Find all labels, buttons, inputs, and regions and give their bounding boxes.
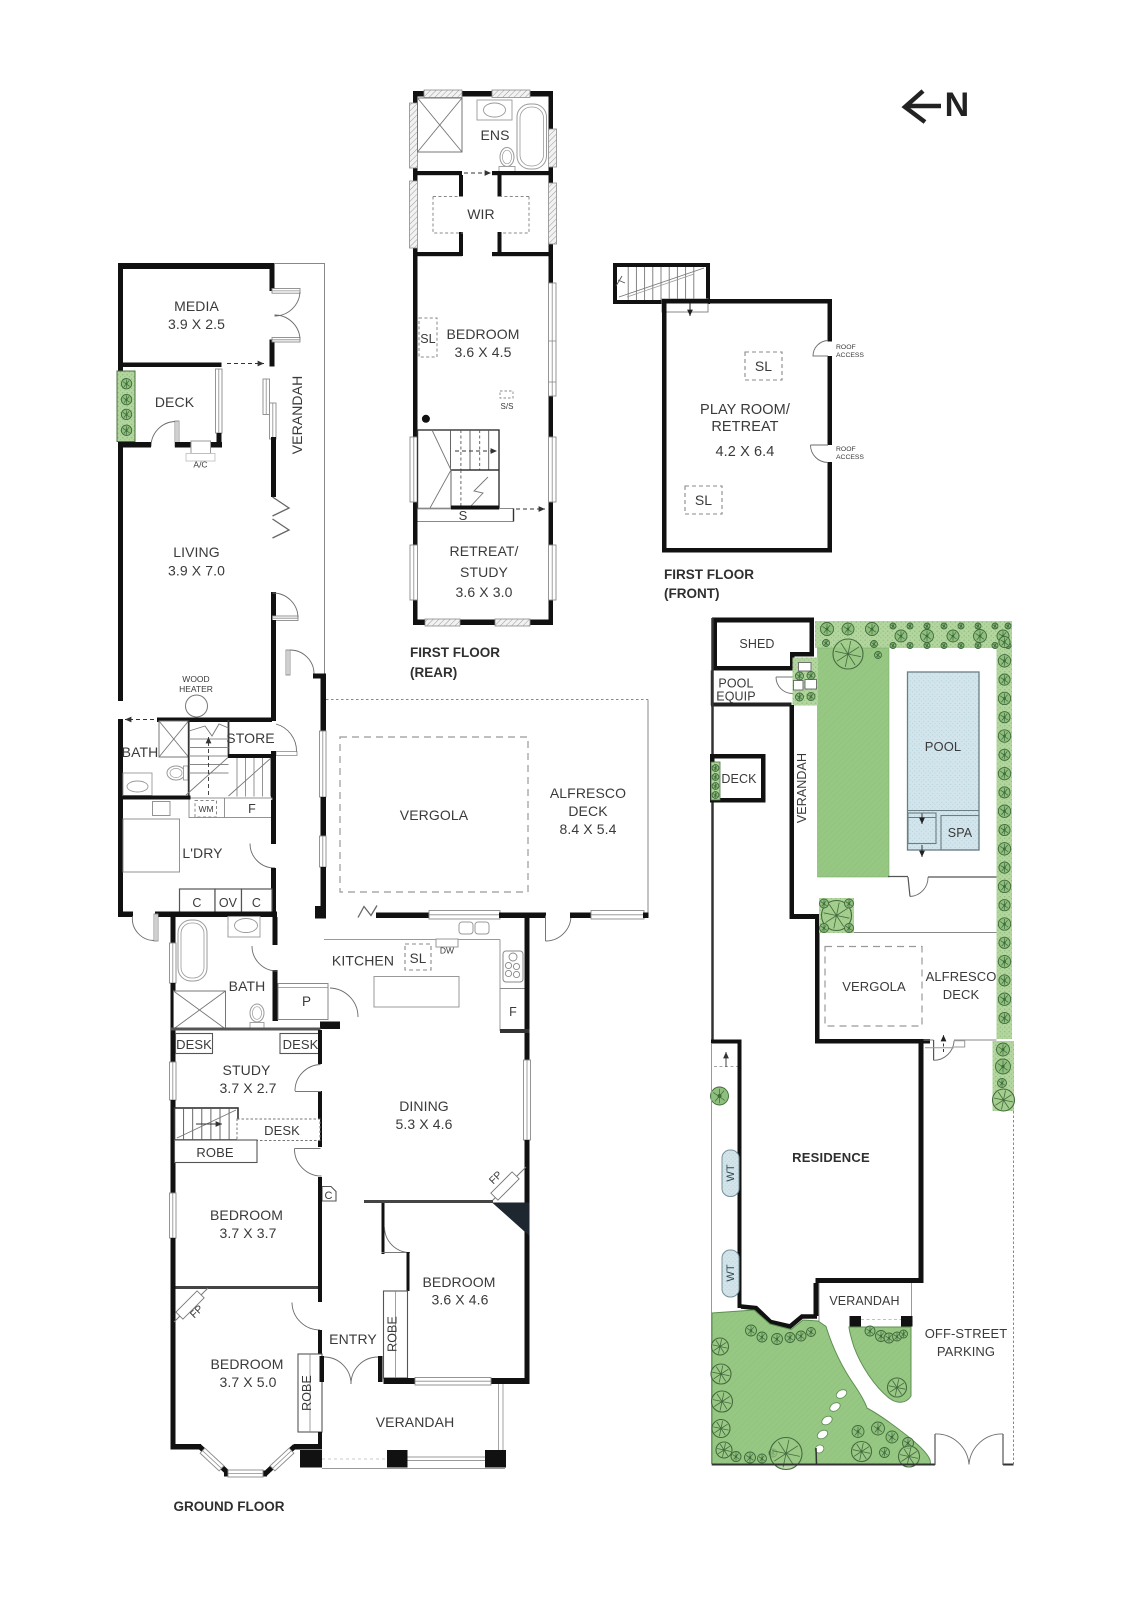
svg-text:VERANDAH: VERANDAH bbox=[289, 376, 305, 455]
svg-text:ROOF: ROOF bbox=[836, 446, 856, 453]
svg-text:ROBE: ROBE bbox=[386, 1316, 400, 1352]
svg-text:DESK: DESK bbox=[264, 1123, 300, 1138]
svg-text:SL: SL bbox=[410, 951, 427, 966]
svg-text:L'DRY: L'DRY bbox=[182, 845, 223, 861]
svg-text:FIRST FLOOR: FIRST FLOOR bbox=[664, 567, 754, 582]
svg-text:RESIDENCE: RESIDENCE bbox=[792, 1150, 870, 1165]
svg-text:DECK: DECK bbox=[155, 394, 195, 410]
svg-text:WM: WM bbox=[198, 804, 213, 814]
svg-text:BATH: BATH bbox=[229, 978, 266, 994]
svg-text:RETREAT: RETREAT bbox=[711, 419, 778, 435]
svg-text:A/C: A/C bbox=[193, 460, 207, 470]
svg-text:RETREAT/: RETREAT/ bbox=[450, 543, 519, 559]
svg-text:PARKING: PARKING bbox=[937, 1344, 995, 1359]
svg-text:C: C bbox=[325, 1190, 333, 1202]
svg-text:BEDROOM: BEDROOM bbox=[422, 1274, 495, 1290]
svg-text:(REAR): (REAR) bbox=[410, 665, 457, 680]
svg-text:SL: SL bbox=[420, 332, 436, 346]
svg-text:DECK: DECK bbox=[943, 987, 980, 1002]
svg-text:MEDIA: MEDIA bbox=[174, 298, 219, 314]
svg-text:ROBE: ROBE bbox=[196, 1145, 233, 1160]
svg-text:3.9 X 7.0: 3.9 X 7.0 bbox=[168, 563, 225, 579]
svg-text:OV: OV bbox=[219, 896, 238, 910]
svg-text:F: F bbox=[248, 802, 256, 816]
svg-text:ROBE: ROBE bbox=[300, 1375, 314, 1411]
svg-text:EQUIP: EQUIP bbox=[716, 690, 755, 704]
svg-text:BEDROOM: BEDROOM bbox=[446, 326, 519, 342]
svg-text:3.9 X 2.5: 3.9 X 2.5 bbox=[168, 316, 225, 332]
svg-text:(FRONT): (FRONT) bbox=[664, 586, 719, 601]
svg-text:ACCESS: ACCESS bbox=[836, 454, 864, 461]
svg-text:3.6 X 4.6: 3.6 X 4.6 bbox=[432, 1292, 489, 1308]
svg-text:C: C bbox=[192, 896, 201, 910]
svg-text:DINING: DINING bbox=[399, 1098, 449, 1114]
svg-text:BATH: BATH bbox=[122, 744, 159, 760]
svg-text:POOL: POOL bbox=[925, 739, 962, 754]
svg-text:S/S: S/S bbox=[501, 402, 514, 411]
svg-text:DECK: DECK bbox=[721, 772, 757, 786]
svg-text:DW: DW bbox=[440, 946, 454, 956]
svg-text:FIRST FLOOR: FIRST FLOOR bbox=[410, 645, 500, 660]
svg-text:OFF-STREET: OFF-STREET bbox=[925, 1326, 1008, 1341]
svg-text:VERANDAH: VERANDAH bbox=[795, 753, 809, 823]
svg-text:STUDY: STUDY bbox=[460, 564, 509, 580]
svg-text:3.6 X 3.0: 3.6 X 3.0 bbox=[456, 584, 513, 600]
svg-text:WT: WT bbox=[725, 1264, 737, 1281]
svg-text:PLAY ROOM/: PLAY ROOM/ bbox=[700, 402, 791, 418]
svg-text:STORE: STORE bbox=[226, 730, 274, 746]
svg-text:5.3 X 4.6: 5.3 X 4.6 bbox=[396, 1116, 453, 1132]
svg-text:POOL: POOL bbox=[718, 677, 753, 691]
svg-text:3.7 X 5.0: 3.7 X 5.0 bbox=[220, 1374, 277, 1390]
svg-text:N: N bbox=[945, 86, 970, 124]
svg-text:STUDY: STUDY bbox=[223, 1062, 272, 1078]
svg-text:WIR: WIR bbox=[467, 206, 495, 222]
svg-text:SL: SL bbox=[695, 492, 712, 508]
svg-text:P: P bbox=[302, 994, 311, 1009]
svg-text:SHED: SHED bbox=[739, 637, 774, 651]
svg-text:ENTRY: ENTRY bbox=[329, 1331, 377, 1347]
svg-text:WOOD: WOOD bbox=[182, 674, 209, 684]
svg-text:KITCHEN: KITCHEN bbox=[332, 953, 394, 969]
svg-text:VERGOLA: VERGOLA bbox=[400, 807, 469, 823]
svg-text:ALFRESCO: ALFRESCO bbox=[550, 785, 626, 801]
svg-text:DECK: DECK bbox=[568, 803, 608, 819]
svg-text:VERGOLA: VERGOLA bbox=[842, 979, 906, 994]
svg-text:3.7 X 3.7: 3.7 X 3.7 bbox=[220, 1225, 277, 1241]
svg-text:F: F bbox=[509, 1005, 517, 1019]
svg-text:ENS: ENS bbox=[480, 127, 509, 143]
svg-text:VERANDAH: VERANDAH bbox=[376, 1414, 455, 1430]
svg-text:VERANDAH: VERANDAH bbox=[829, 1294, 899, 1308]
svg-text:ROOF: ROOF bbox=[836, 344, 856, 351]
svg-text:GROUND FLOOR: GROUND FLOOR bbox=[174, 1499, 285, 1514]
svg-text:S: S bbox=[459, 508, 468, 523]
svg-text:SL: SL bbox=[755, 358, 772, 374]
svg-text:BEDROOM: BEDROOM bbox=[210, 1207, 283, 1223]
svg-text:WT: WT bbox=[725, 1164, 737, 1181]
svg-text:3.7 X 2.7: 3.7 X 2.7 bbox=[220, 1080, 277, 1096]
svg-text:HEATER: HEATER bbox=[179, 684, 213, 694]
svg-text:DESK: DESK bbox=[283, 1037, 319, 1052]
svg-text:SPA: SPA bbox=[948, 826, 973, 840]
svg-text:ACCESS: ACCESS bbox=[836, 352, 864, 359]
svg-text:LIVING: LIVING bbox=[173, 544, 220, 560]
svg-text:C: C bbox=[252, 896, 261, 910]
svg-text:3.6 X 4.5: 3.6 X 4.5 bbox=[455, 344, 512, 360]
svg-text:DESK: DESK bbox=[176, 1037, 212, 1052]
svg-text:ALFRESCO: ALFRESCO bbox=[926, 969, 997, 984]
svg-text:4.2 X 6.4: 4.2 X 6.4 bbox=[716, 444, 775, 460]
svg-text:8.4 X 5.4: 8.4 X 5.4 bbox=[560, 821, 617, 837]
svg-text:BEDROOM: BEDROOM bbox=[210, 1356, 283, 1372]
